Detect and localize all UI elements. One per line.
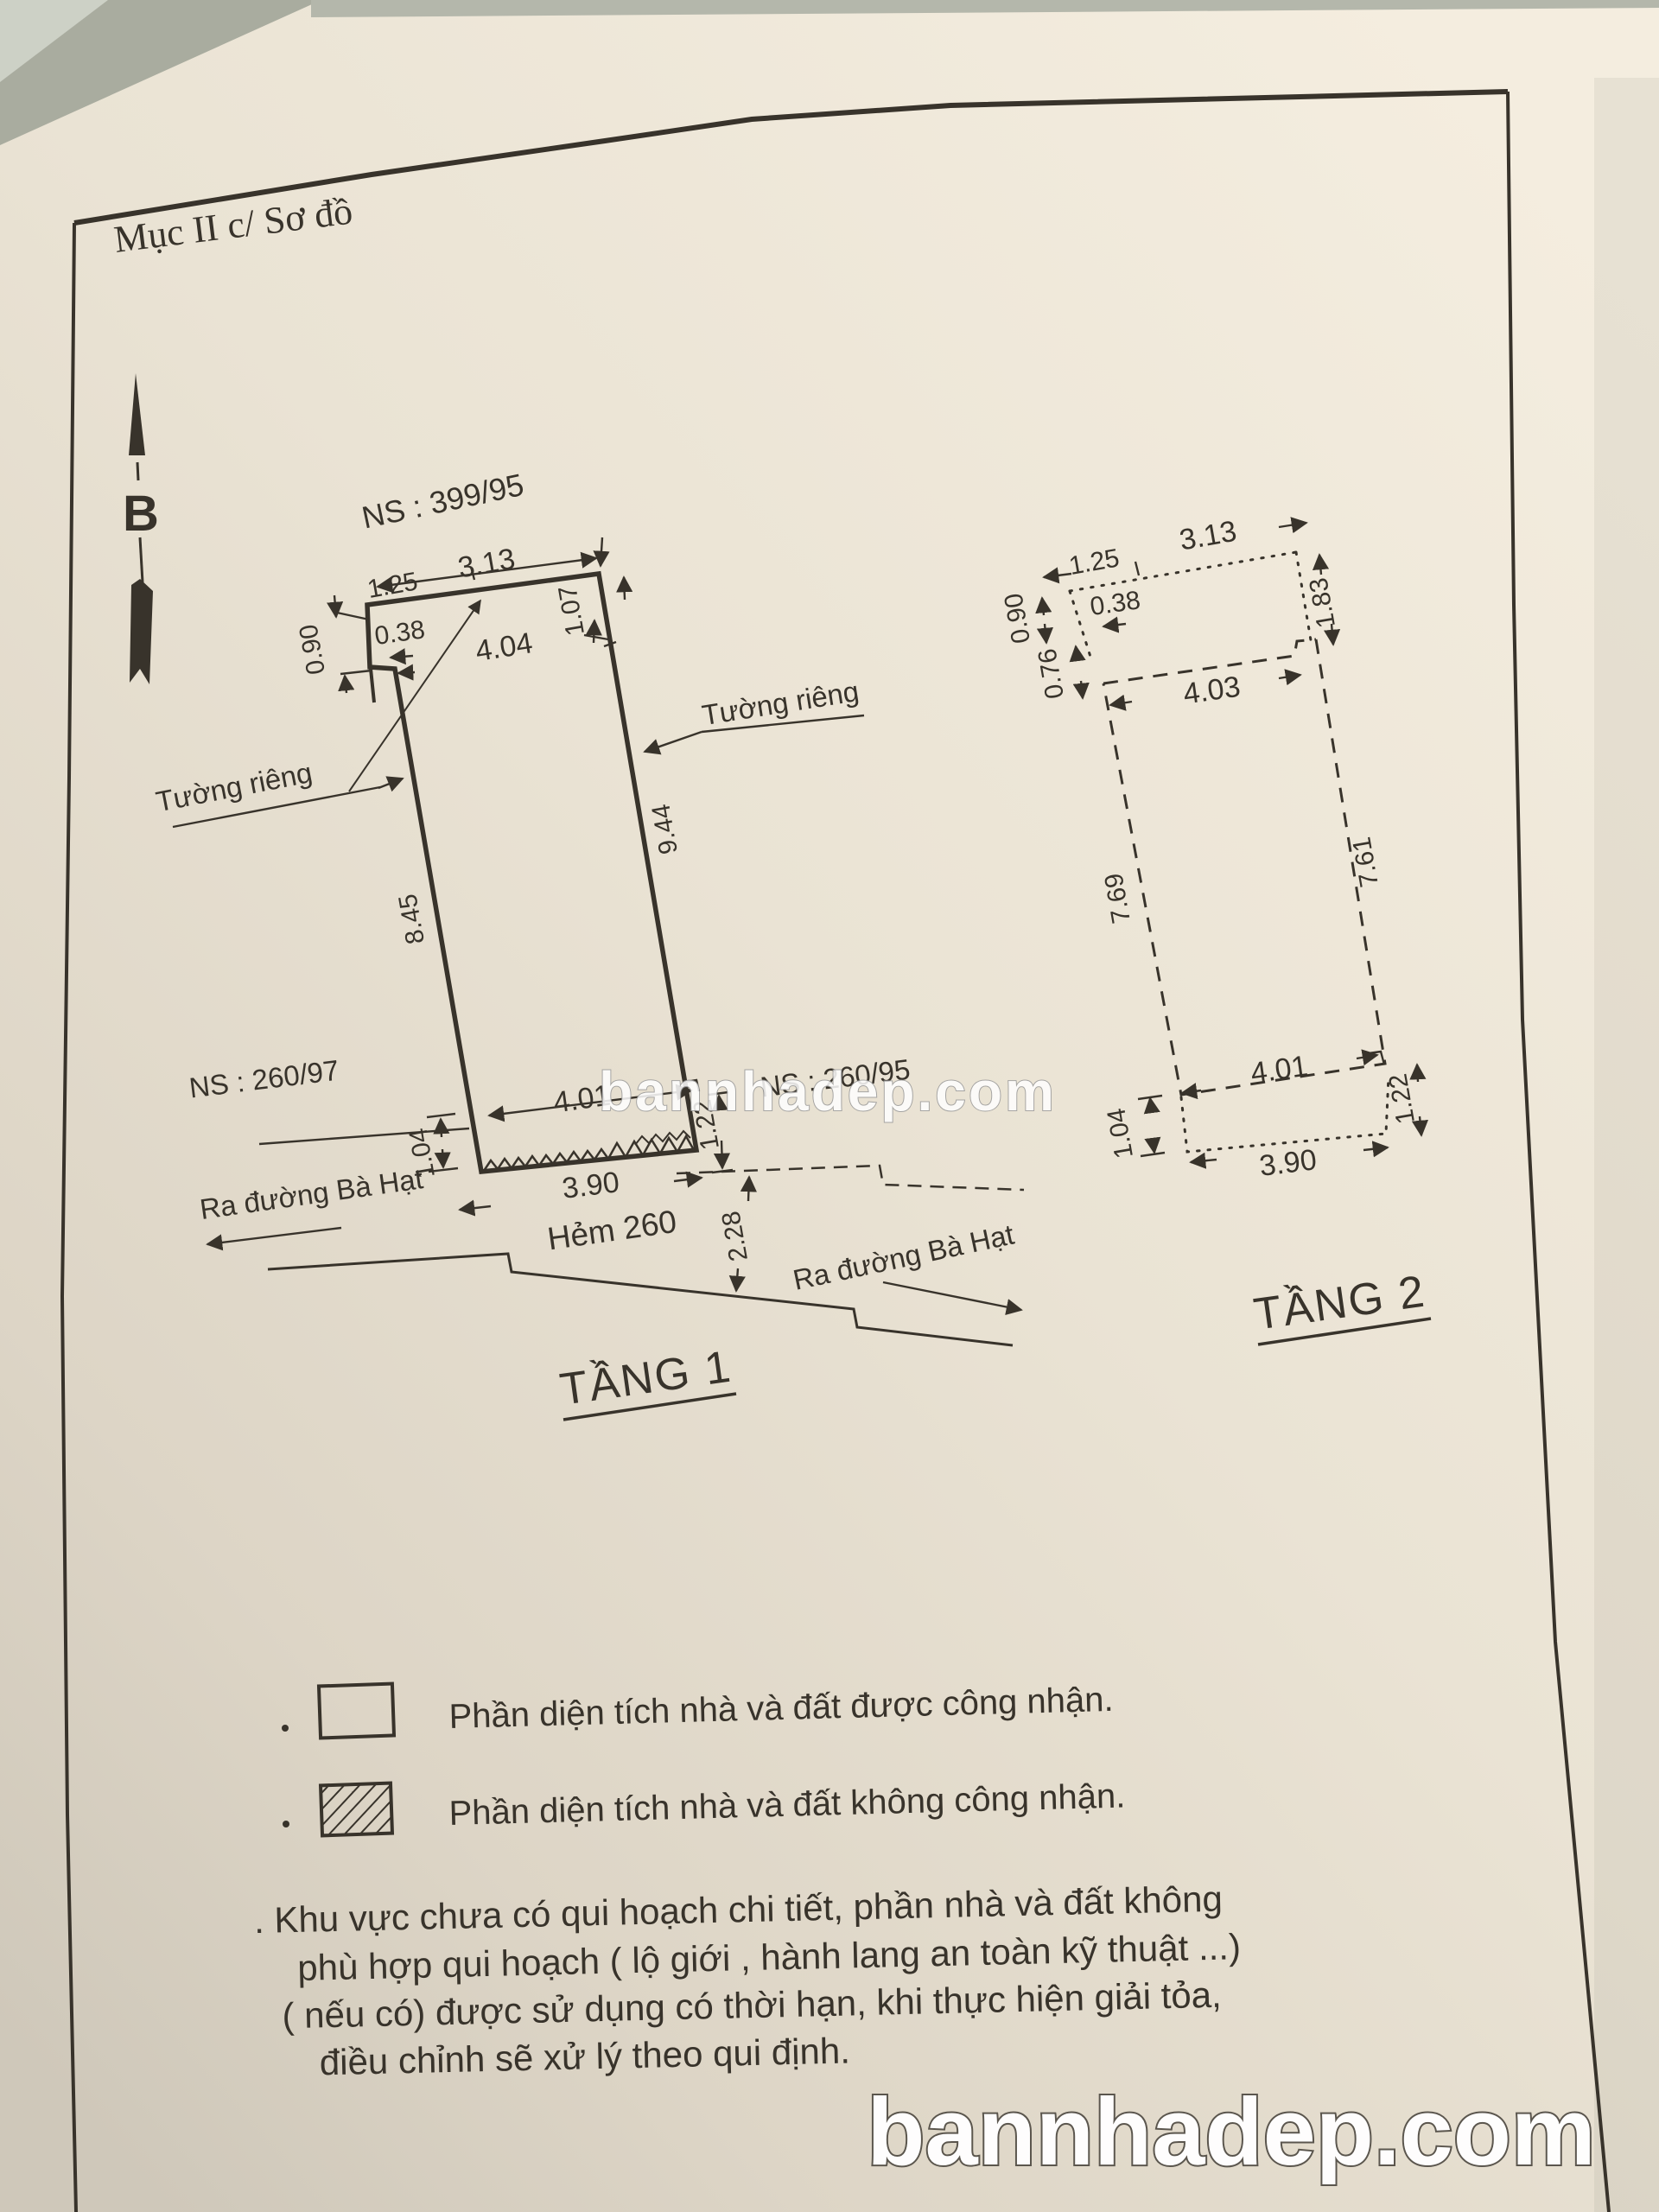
- legend-bullet-2: [283, 1821, 289, 1827]
- floor2-dim-bottom-outer: 3.90: [1257, 1143, 1318, 1183]
- page-edge-shadow: [1594, 78, 1659, 2212]
- watermark-bottom: bannhadep.com: [867, 2079, 1595, 2185]
- watermark-center: bannhadep.com: [599, 1060, 1057, 1122]
- scanned-survey-page: Mục II c/ Sơ đồ B: [0, 0, 1659, 2212]
- floor1-dim-bottom-outer: 3.90: [560, 1166, 620, 1205]
- legend-bullet-1: [282, 1725, 289, 1732]
- survey-drawing: Mục II c/ Sơ đồ B: [0, 0, 1659, 2212]
- north-label: B: [123, 486, 159, 542]
- legend-swatch-not-recognized: [321, 1783, 392, 1836]
